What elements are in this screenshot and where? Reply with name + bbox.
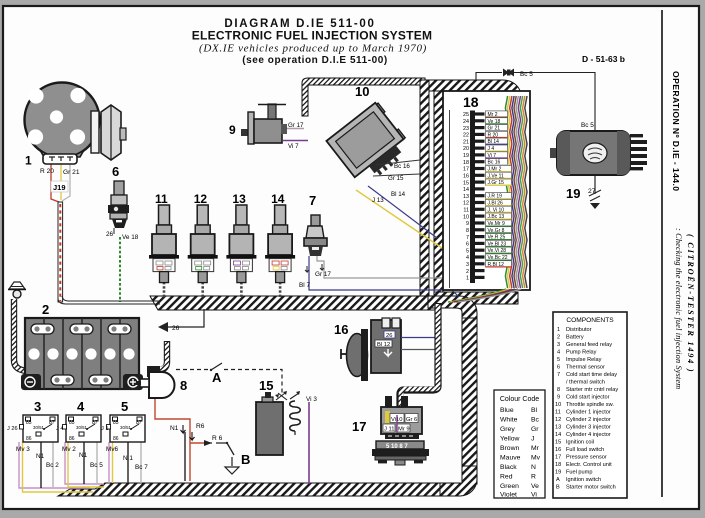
svg-text:Bl 12: Bl 12 <box>377 342 390 348</box>
svg-text:Starter motor switch: Starter motor switch <box>566 485 616 491</box>
svg-text:8: 8 <box>466 228 469 234</box>
svg-text:Grey: Grey <box>500 426 515 433</box>
svg-text:2: 2 <box>557 335 560 341</box>
svg-text:8: 8 <box>557 387 560 393</box>
svg-text:Vi 7: Vi 7 <box>288 143 299 150</box>
svg-text:15: 15 <box>259 378 273 393</box>
svg-text:Bl: Bl <box>531 407 538 414</box>
svg-text:4: 4 <box>77 399 85 414</box>
svg-text:Bc 2: Bc 2 <box>46 462 59 469</box>
svg-text:Ignition switch: Ignition switch <box>566 477 601 483</box>
svg-text:4: 4 <box>466 255 469 261</box>
svg-text:7: 7 <box>557 372 560 378</box>
svg-text:Gr 17: Gr 17 <box>288 122 304 129</box>
svg-text:R6: R6 <box>196 423 205 430</box>
svg-text:85: 85 <box>113 420 119 426</box>
svg-text:Ve 18: Ve 18 <box>122 234 139 241</box>
svg-text:30/51: 30/51 <box>76 425 88 430</box>
svg-text:7: 7 <box>309 193 316 208</box>
svg-text:10: 10 <box>355 84 369 99</box>
svg-text:30/51: 30/51 <box>33 425 45 430</box>
svg-text:3: 3 <box>34 399 41 414</box>
svg-text:3: 3 <box>557 342 560 348</box>
svg-text:3: 3 <box>466 262 469 268</box>
svg-text:Gr 21: Gr 21 <box>63 169 80 176</box>
svg-text:Red: Red <box>500 474 513 481</box>
svg-text:Throttle spindle sw.: Throttle spindle sw. <box>566 402 614 408</box>
svg-text:9: 9 <box>466 221 469 227</box>
svg-text:11: 11 <box>463 208 469 214</box>
svg-text:Violet: Violet <box>500 492 517 499</box>
svg-text:18: 18 <box>555 462 561 468</box>
svg-text:26: 26 <box>386 333 392 339</box>
svg-text:14: 14 <box>463 187 469 193</box>
svg-text:Cold start time delay: Cold start time delay <box>566 372 617 378</box>
svg-text:Bl 14: Bl 14 <box>391 191 406 198</box>
svg-text:OPERATION Nº D.IE - 144.0: OPERATION Nº D.IE - 144.0 <box>671 71 681 191</box>
svg-text:B: B <box>241 452 250 467</box>
svg-text:14: 14 <box>271 192 285 206</box>
svg-text:/ thermal switch: / thermal switch <box>566 380 605 386</box>
svg-text:8: 8 <box>180 378 187 393</box>
svg-text:N1: N1 <box>79 452 88 459</box>
svg-text:Bc: Bc <box>531 417 540 424</box>
svg-text:Gr 15: Gr 15 <box>388 175 404 182</box>
svg-text:Battery: Battery <box>566 335 584 341</box>
svg-text:6: 6 <box>557 365 560 371</box>
svg-text:Ve: Ve <box>531 483 539 490</box>
svg-text:Mauve: Mauve <box>500 455 521 462</box>
svg-text:Pump Relay: Pump Relay <box>566 350 597 356</box>
svg-text:19: 19 <box>566 186 580 201</box>
svg-text:19: 19 <box>555 470 561 476</box>
svg-text:Starter mtr cntrl relay: Starter mtr cntrl relay <box>566 387 618 393</box>
svg-text:21: 21 <box>463 139 469 145</box>
svg-text:Thermal sensor: Thermal sensor <box>566 365 605 371</box>
svg-text:1: 1 <box>466 276 469 282</box>
svg-text:1: 1 <box>557 327 560 333</box>
svg-text:Mr: Mr <box>531 445 540 452</box>
svg-text:J 11: J 11 <box>384 427 395 433</box>
svg-text:: Checking the electronic: : Checking the electronic fuel injection… <box>674 228 683 389</box>
svg-text:Cylinder 1 injector: Cylinder 1 injector <box>566 410 611 416</box>
svg-text:Mv 2: Mv 2 <box>62 446 76 453</box>
svg-text:22: 22 <box>463 133 469 139</box>
svg-text:24: 24 <box>463 119 469 125</box>
svg-text:Gr 6: Gr 6 <box>406 417 417 423</box>
svg-text:J: J <box>531 436 534 443</box>
svg-text:30/51: 30/51 <box>120 425 132 430</box>
svg-text:Gr 17: Gr 17 <box>315 271 331 278</box>
svg-text:9: 9 <box>557 395 560 401</box>
svg-text:(DX.IE vehicles produced up: (DX.IE vehicles produced up to March 197… <box>199 43 427 55</box>
svg-text:15: 15 <box>463 180 469 186</box>
svg-text:Electr. Control unit: Electr. Control unit <box>566 462 612 468</box>
svg-text:Mv: Mv <box>531 455 541 462</box>
svg-text:19: 19 <box>463 153 469 159</box>
svg-text:26: 26 <box>172 325 180 332</box>
svg-text:15: 15 <box>555 440 561 446</box>
svg-text:N 1: N 1 <box>123 455 133 462</box>
svg-text:( CITROËN-TESTER 1494 ): ( CITROËN-TESTER 1494 ) <box>686 234 695 373</box>
svg-text:COMPONENTS: COMPONENTS <box>566 317 614 324</box>
svg-text:18: 18 <box>463 94 479 110</box>
svg-text:(see operation D.I.E 511-00): (see operation D.I.E 511-00) <box>242 55 387 66</box>
svg-text:85: 85 <box>26 420 32 426</box>
svg-text:Cylinder 4 injector: Cylinder 4 injector <box>566 432 611 438</box>
svg-text:26: 26 <box>106 231 114 238</box>
svg-text:Blue: Blue <box>500 407 514 414</box>
svg-text:86: 86 <box>69 436 75 442</box>
svg-text:Pressure sensor: Pressure sensor <box>566 455 607 461</box>
svg-text:White: White <box>500 417 518 424</box>
svg-text:Bc 5: Bc 5 <box>520 71 533 78</box>
svg-text:R: R <box>531 474 536 481</box>
svg-text:16: 16 <box>334 322 348 337</box>
svg-text:85: 85 <box>69 420 75 426</box>
svg-text:R 6: R 6 <box>212 435 223 442</box>
svg-text:86: 86 <box>113 436 119 442</box>
svg-text:Bl 7: Bl 7 <box>299 282 310 289</box>
svg-text:N: N <box>531 464 536 471</box>
svg-text:Green: Green <box>500 483 519 490</box>
svg-text:Bc 16: Bc 16 <box>394 163 410 170</box>
svg-text:N1: N1 <box>36 453 45 460</box>
svg-text:11: 11 <box>155 192 168 206</box>
svg-text:J 1: J 1 <box>101 426 108 432</box>
svg-text:Bc 7: Bc 7 <box>135 464 148 471</box>
svg-text:12: 12 <box>555 417 561 423</box>
svg-text:16: 16 <box>555 447 561 453</box>
svg-text:D - 51-63 b: D - 51-63 b <box>582 54 625 64</box>
svg-text:12: 12 <box>194 192 208 206</box>
svg-text:R 20: R 20 <box>40 168 54 175</box>
svg-text:5: 5 <box>466 248 469 254</box>
svg-text:Mr 9: Mr 9 <box>398 427 410 433</box>
svg-text:J 26: J 26 <box>7 426 18 432</box>
svg-text:13: 13 <box>463 194 469 200</box>
svg-text:11: 11 <box>555 410 561 416</box>
svg-text:5: 5 <box>121 399 128 414</box>
svg-text:1: 1 <box>25 154 32 168</box>
svg-text:Bc 5: Bc 5 <box>90 462 103 469</box>
svg-text:14: 14 <box>555 432 561 438</box>
svg-text:Full load switch: Full load switch <box>566 447 604 453</box>
svg-text:A: A <box>212 370 222 385</box>
svg-text:Bc 5: Bc 5 <box>581 122 594 129</box>
svg-text:16: 16 <box>463 174 469 180</box>
svg-text:General feed relay: General feed relay <box>566 342 612 348</box>
svg-text:J 13: J 13 <box>372 197 384 204</box>
svg-text:Mv6: Mv6 <box>106 446 119 453</box>
svg-text:9: 9 <box>229 123 236 137</box>
svg-text:Colour Code: Colour Code <box>500 396 539 403</box>
svg-text:13: 13 <box>555 425 561 431</box>
svg-text:Gr: Gr <box>531 426 539 433</box>
svg-text:25: 25 <box>463 112 469 118</box>
svg-text:Black: Black <box>500 464 517 471</box>
svg-text:Mv 3: Mv 3 <box>16 446 30 453</box>
svg-text:Cylinder 2 injector: Cylinder 2 injector <box>566 417 611 423</box>
svg-text:17: 17 <box>555 455 561 461</box>
svg-text:Ignition coil: Ignition coil <box>566 440 594 446</box>
svg-text:Yellow: Yellow <box>500 436 519 443</box>
svg-text:13: 13 <box>232 192 246 206</box>
svg-text:17: 17 <box>352 419 366 434</box>
svg-text:10: 10 <box>555 402 561 408</box>
svg-text:5: 5 <box>557 357 560 363</box>
svg-text:12: 12 <box>463 201 469 207</box>
svg-text:20: 20 <box>463 146 469 152</box>
svg-text:2: 2 <box>466 269 469 275</box>
svg-text:2: 2 <box>42 302 49 317</box>
svg-text:Brown: Brown <box>500 445 519 452</box>
svg-text:J19: J19 <box>53 183 66 192</box>
svg-text:Cylinder 3 injector: Cylinder 3 injector <box>566 425 611 431</box>
svg-text:Vi: Vi <box>531 492 537 499</box>
svg-text:18: 18 <box>463 160 469 166</box>
svg-text:6: 6 <box>466 242 469 248</box>
svg-text:A: A <box>556 477 560 483</box>
svg-text:B: B <box>556 485 560 491</box>
svg-text:23: 23 <box>463 126 469 132</box>
svg-text:ELECTRONIC FUEL INJECTION SYST: ELECTRONIC FUEL INJECTION SYSTEM <box>192 29 432 43</box>
svg-text:10: 10 <box>463 214 469 220</box>
svg-text:86: 86 <box>26 436 32 442</box>
svg-text:6: 6 <box>112 164 119 179</box>
svg-text:Cold start injector: Cold start injector <box>566 395 610 401</box>
svg-text:Vi 3: Vi 3 <box>306 396 317 403</box>
svg-text:J 4: J 4 <box>56 426 63 432</box>
svg-text:7: 7 <box>466 235 469 241</box>
svg-text:Impulse Relay: Impulse Relay <box>566 357 602 363</box>
svg-text:N1: N1 <box>170 425 179 432</box>
svg-text:Fuel pump: Fuel pump <box>566 470 592 476</box>
svg-text:17: 17 <box>463 167 469 173</box>
svg-text:Distributor: Distributor <box>566 327 592 333</box>
svg-text:4: 4 <box>557 350 560 356</box>
